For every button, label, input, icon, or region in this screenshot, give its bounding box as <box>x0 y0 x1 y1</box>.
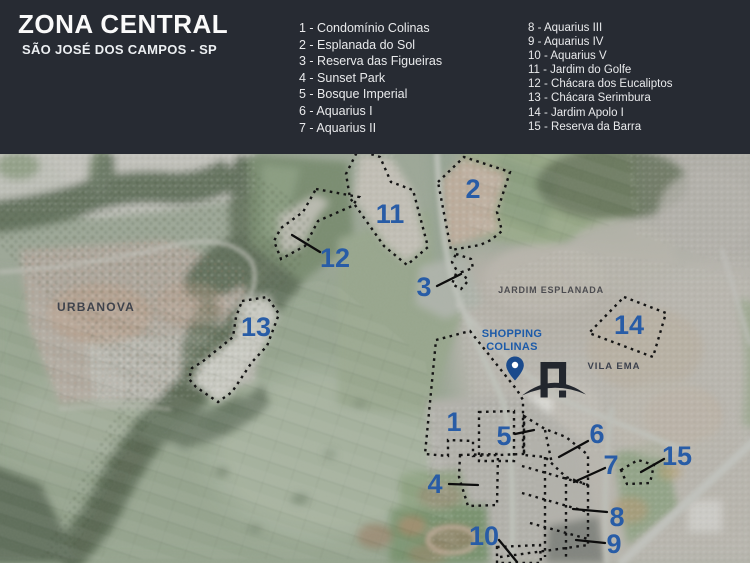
svg-text:4: 4 <box>427 469 442 499</box>
svg-text:VILA EMA: VILA EMA <box>587 361 640 372</box>
svg-text:9: 9 <box>606 529 621 559</box>
svg-text:6: 6 <box>589 419 604 449</box>
svg-text:COLINAS: COLINAS <box>486 341 538 353</box>
svg-text:8: 8 <box>609 502 624 532</box>
svg-text:1: 1 <box>446 407 461 437</box>
svg-text:10: 10 <box>469 521 499 551</box>
svg-text:15: 15 <box>662 441 692 471</box>
svg-text:13: 13 <box>241 312 271 342</box>
svg-text:11: 11 <box>376 199 405 229</box>
svg-text:5: 5 <box>496 421 511 451</box>
svg-text:2: 2 <box>465 174 480 204</box>
svg-text:12: 12 <box>320 243 350 273</box>
svg-text:3: 3 <box>416 272 431 302</box>
svg-text:7: 7 <box>603 450 618 480</box>
svg-text:URBANOVA: URBANOVA <box>57 300 135 314</box>
svg-text:SHOPPING: SHOPPING <box>482 328 542 340</box>
svg-text:14: 14 <box>614 310 644 340</box>
svg-text:JARDIM ESPLANADA: JARDIM ESPLANADA <box>498 285 604 295</box>
